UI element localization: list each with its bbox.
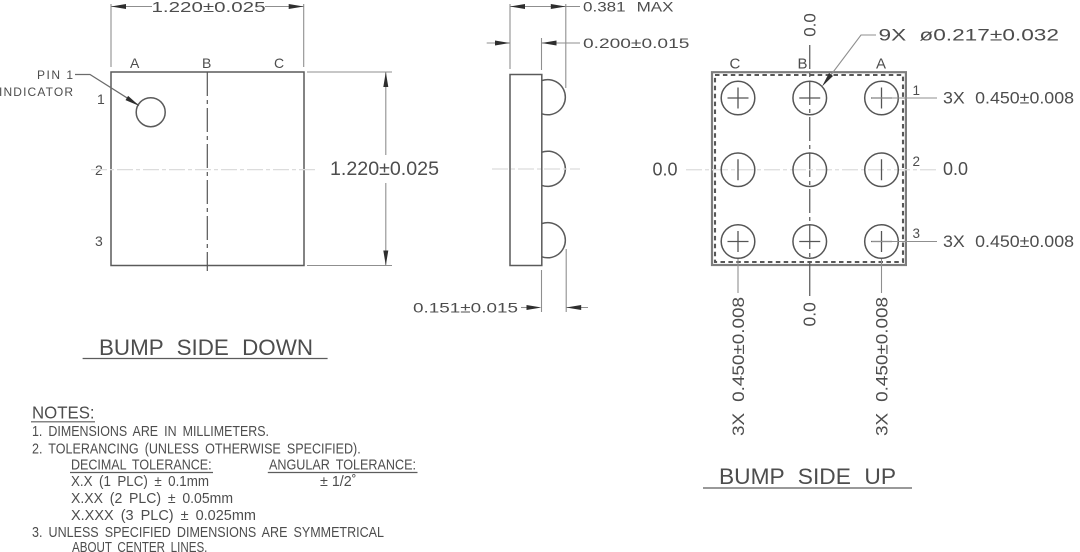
svg-text:2: 2	[913, 154, 921, 169]
svg-text:DECIMAL TOLERANCE:: DECIMAL TOLERANCE:	[71, 458, 212, 474]
svg-text:ABOUT CENTER LINES.: ABOUT CENTER LINES.	[72, 540, 207, 552]
svg-text:3: 3	[913, 226, 921, 241]
svg-text:NOTES:: NOTES:	[32, 403, 95, 423]
svg-text:0.381 MAX: 0.381 MAX	[583, 0, 674, 15]
svg-text:2. TOLERANCING (UNLESS OTHERWI: 2. TOLERANCING (UNLESS OTHERWISE SPECIFI…	[32, 442, 361, 458]
svg-text:BUMP SIDE UP: BUMP SIDE UP	[719, 464, 896, 489]
svg-text:0.0: 0.0	[801, 13, 820, 37]
svg-text:0.0: 0.0	[653, 160, 678, 180]
svg-text:3. UNLESS SPECIFIED DIMENSIONS: 3. UNLESS SPECIFIED DIMENSIONS ARE SYMME…	[32, 525, 384, 541]
svg-text:3X 0.450±0.008: 3X 0.450±0.008	[943, 233, 1074, 251]
svg-text:X.X (1 PLC) ± 0.1mm: X.X (1 PLC) ± 0.1mm	[71, 474, 209, 490]
svg-text:1.220±0.025: 1.220±0.025	[152, 0, 266, 16]
svg-text:± 1/2˚: ± 1/2˚	[320, 474, 357, 490]
svg-text:3: 3	[95, 233, 103, 249]
svg-text:3X 0.450±0.008: 3X 0.450±0.008	[874, 297, 892, 436]
svg-text:1.220±0.025: 1.220±0.025	[330, 159, 439, 180]
svg-text:A: A	[876, 56, 886, 73]
svg-text:C: C	[730, 56, 741, 73]
svg-text:9X ø0.217±0.032: 9X ø0.217±0.032	[879, 27, 1060, 45]
svg-text:X.XXX (3 PLC) ± 0.025mm: X.XXX (3 PLC) ± 0.025mm	[71, 508, 256, 524]
svg-text:PIN 1: PIN 1	[37, 68, 73, 82]
svg-text:1: 1	[913, 83, 921, 98]
svg-text:0.0: 0.0	[800, 302, 820, 327]
svg-text:B: B	[798, 56, 808, 73]
svg-text:ANGULAR TOLERANCE:: ANGULAR TOLERANCE:	[269, 458, 416, 474]
svg-text:B: B	[202, 55, 211, 71]
svg-text:C: C	[274, 55, 284, 71]
svg-text:0.151±0.015: 0.151±0.015	[413, 300, 518, 316]
svg-text:3X 0.450±0.008: 3X 0.450±0.008	[943, 90, 1074, 108]
svg-text:1: 1	[97, 91, 105, 107]
svg-text:INDICATOR: INDICATOR	[0, 85, 73, 99]
svg-text:A: A	[130, 55, 140, 71]
svg-text:0.0: 0.0	[943, 159, 968, 179]
svg-text:1. DIMENSIONS ARE IN MILLIMETE: 1. DIMENSIONS ARE IN MILLIMETERS.	[32, 424, 269, 440]
svg-text:X.XX (2 PLC) ± 0.05mm: X.XX (2 PLC) ± 0.05mm	[71, 491, 233, 507]
svg-text:3X 0.450±0.008: 3X 0.450±0.008	[730, 297, 748, 436]
svg-text:0.200±0.015: 0.200±0.015	[583, 36, 689, 51]
svg-text:BUMP SIDE DOWN: BUMP SIDE DOWN	[99, 335, 313, 360]
